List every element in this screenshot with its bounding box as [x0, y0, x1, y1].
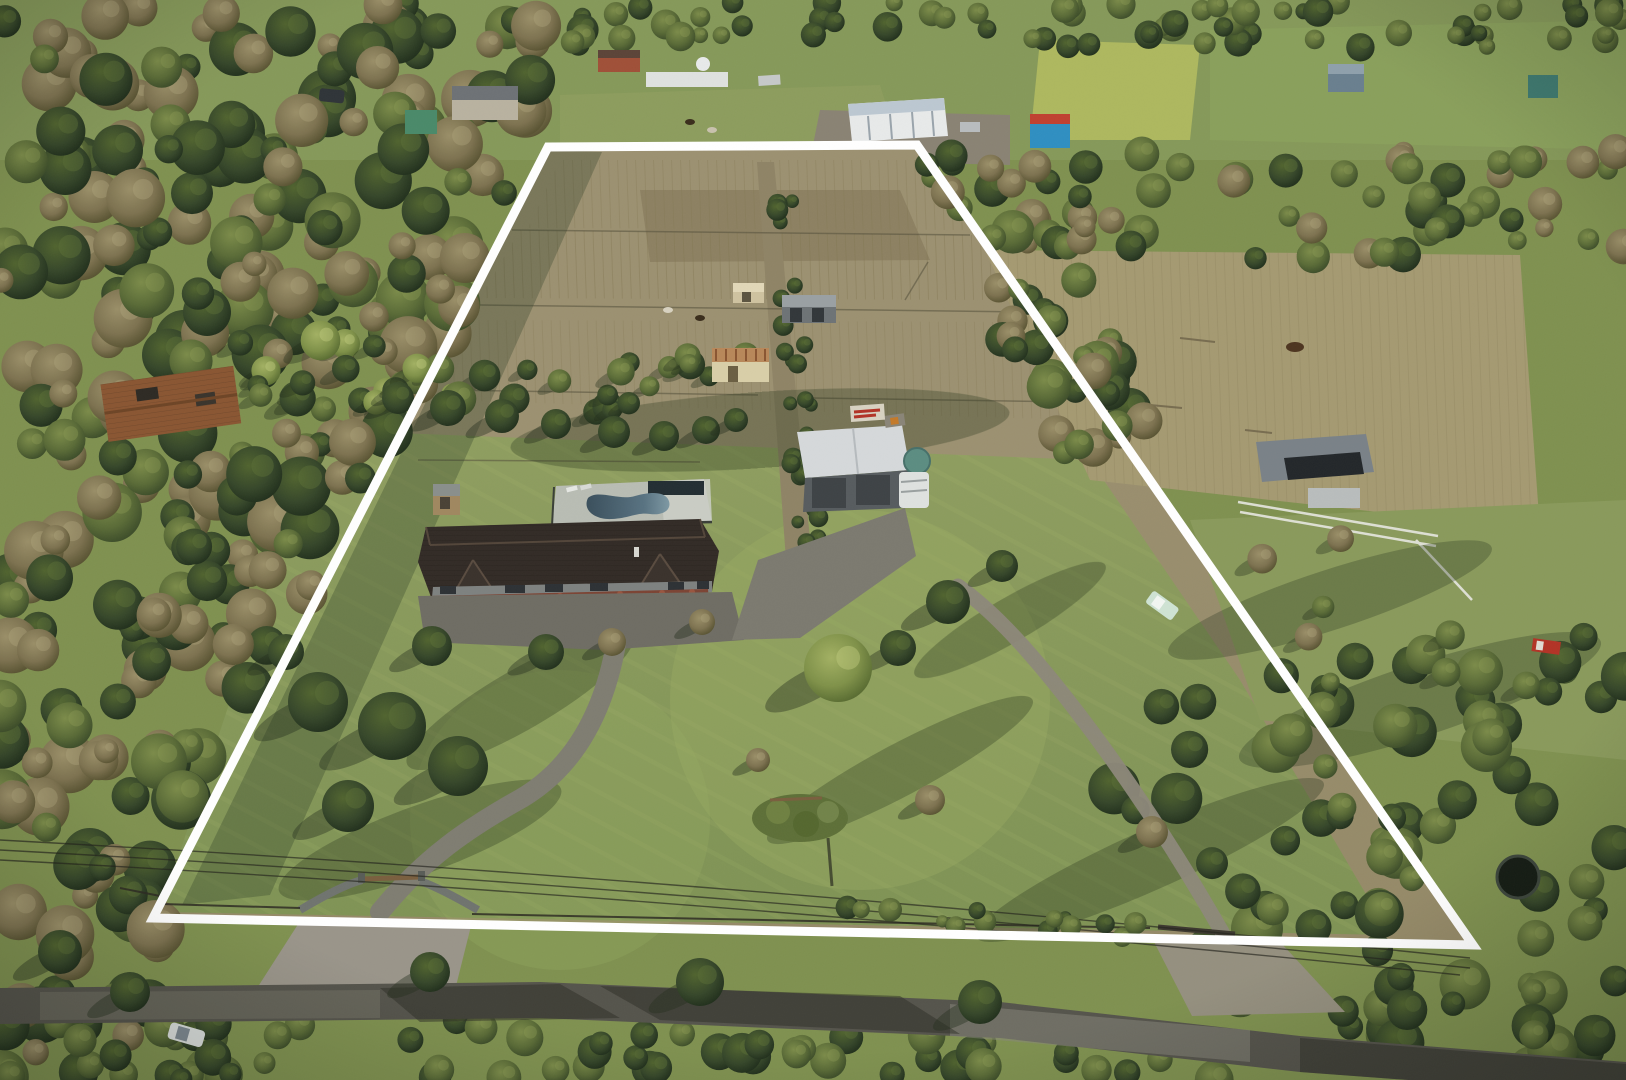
aerial-photo-canvas: [0, 0, 1626, 1080]
aerial-photo: [0, 0, 1626, 1080]
vignette: [0, 0, 1626, 1080]
